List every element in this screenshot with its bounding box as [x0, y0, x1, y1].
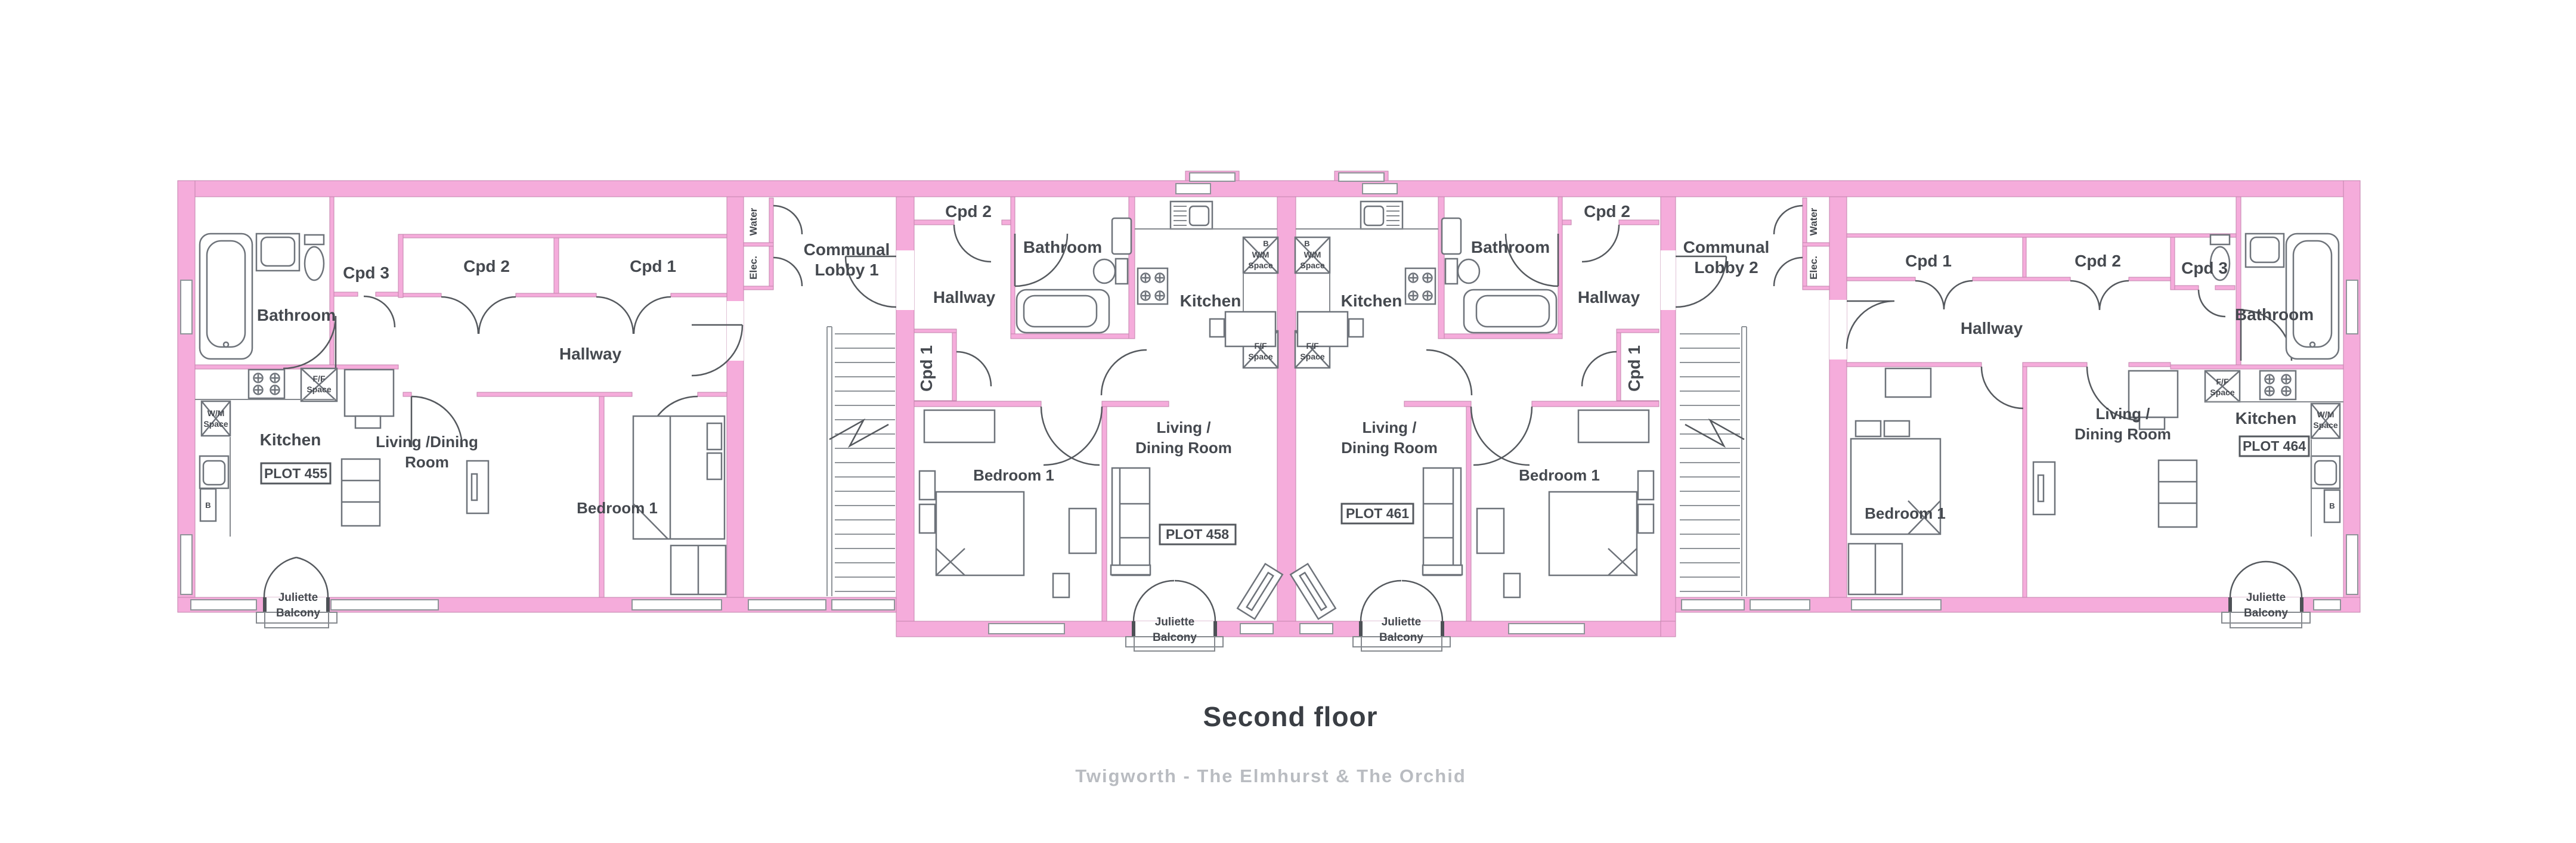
room-label-living-464-line2: Dining Room [2075, 425, 2171, 443]
balcony-label-458-line2: Balcony [1153, 631, 1197, 644]
room-label-bathroom-455: Bathroom [257, 306, 336, 324]
plot455-fixtures [195, 234, 726, 594]
room-label-hallway-464: Hallway [1961, 319, 2023, 337]
room-label-living-455-line2: Room [405, 453, 449, 471]
ff-label-458: F/F [1255, 341, 1267, 351]
boiler-label-461: B [1304, 239, 1309, 248]
room-label-living-464-line1: Living / [2096, 405, 2150, 423]
boiler-label-458: B [1263, 239, 1268, 248]
room-label-kitchen-455: Kitchen [260, 430, 321, 449]
ff-label-455: F/F [313, 374, 326, 383]
wm-space-label-461: Space [1300, 261, 1324, 270]
elec-closet-label-1: Elec. [748, 256, 759, 280]
room-label-cpd2-461: Cpd 2 [1584, 202, 1630, 221]
plot461-fixtures [1290, 202, 1654, 619]
wm-space-label-458: Space [1248, 261, 1272, 270]
room-label-bedroom-455: Bedroom 1 [577, 499, 658, 517]
room-label-bedroom-464: Bedroom 1 [1865, 504, 1946, 522]
balcony-label-464-line2: Balcony [2244, 607, 2288, 619]
room-label-bathroom-458: Bathroom [1023, 238, 1102, 256]
wm-space-label-455: Space [203, 419, 228, 429]
floor-plan-svg: Bathroom Cpd 3 Cpd 2 Cpd 1 Hallway Kitch… [0, 0, 2576, 843]
plot-455-badge: PLOT 455 [261, 463, 330, 484]
boiler-label-464: B [2329, 501, 2334, 510]
water-closet-label-1: Water [748, 207, 759, 235]
balcony-label-455-line1: Juliette [278, 591, 318, 604]
page-title: Second floor [1203, 701, 1377, 732]
wm-label-455: W/M [208, 408, 225, 418]
boiler-label-455: B [205, 501, 210, 510]
room-label-cpd1-464: Cpd 1 [1905, 252, 1952, 270]
ff-label-461: F/F [1306, 341, 1319, 351]
svg-text:PLOT 464: PLOT 464 [2243, 438, 2306, 454]
room-label-bedroom-458: Bedroom 1 [973, 466, 1054, 484]
stairs-lobby1 [827, 327, 895, 596]
room-label-living-461-line2: Dining Room [1341, 439, 1438, 457]
ff-space-label-455: Space [306, 385, 331, 394]
svg-text:PLOT 461: PLOT 461 [1346, 506, 1409, 521]
balcony-label-461-line2: Balcony [1379, 631, 1423, 644]
water-closet-label-2: Water [1808, 207, 1819, 235]
ff-space-label-461: Space [1300, 352, 1324, 361]
lobby2-label-line2: Lobby 2 [1694, 258, 1758, 277]
room-label-hallway-455: Hallway [559, 345, 622, 363]
lobby1-label-line1: Communal [804, 240, 890, 259]
plot-458-badge: PLOT 458 [1160, 525, 1236, 544]
plot-461-badge: PLOT 461 [1342, 504, 1413, 523]
balcony-label-464-line1: Juliette [2246, 591, 2286, 604]
plot458-fixtures [919, 202, 1283, 619]
stairs-lobby2 [1680, 327, 1747, 596]
room-label-cpd2-455: Cpd 2 [463, 257, 510, 275]
floor-plan-page: Bathroom Cpd 3 Cpd 2 Cpd 1 Hallway Kitch… [0, 0, 2576, 843]
room-label-living-458-line1: Living / [1157, 419, 1211, 436]
svg-text:PLOT 458: PLOT 458 [1166, 526, 1229, 542]
room-label-hallway-461: Hallway [1578, 288, 1640, 306]
wm-label-458: W/M [1252, 250, 1270, 259]
room-label-bedroom-461: Bedroom 1 [1519, 466, 1600, 484]
wm-label-464: W/M [2317, 410, 2334, 419]
room-label-cpd2-458: Cpd 2 [945, 202, 992, 221]
room-label-living-461-line1: Living / [1363, 419, 1417, 436]
balcony-label-455-line2: Balcony [276, 607, 320, 619]
room-label-living-455-line1: Living /Dining [376, 433, 478, 451]
room-label-cpd1-455: Cpd 1 [630, 257, 676, 275]
room-label-cpd3-464: Cpd 3 [2181, 259, 2228, 277]
ff-label-464: F/F [2216, 377, 2229, 386]
room-label-cpd3-455: Cpd 3 [343, 264, 389, 282]
room-label-cpd1-458: Cpd 1 [917, 345, 936, 392]
plot464-labels: Cpd 1 Cpd 2 Cpd 3 Hallway Bathroom Kitch… [1865, 252, 2338, 619]
plot455-labels: Bathroom Cpd 3 Cpd 2 Cpd 1 Hallway Kitch… [203, 257, 676, 619]
elec-closet-label-2: Elec. [1808, 256, 1819, 280]
ff-space-label-464: Space [2210, 388, 2234, 397]
wm-label-461: W/M [1304, 250, 1321, 259]
lobby2-label-line1: Communal [1683, 238, 1770, 256]
party-walls [727, 197, 1847, 621]
ff-space-label-458: Space [1248, 352, 1272, 361]
room-label-kitchen-464: Kitchen [2236, 409, 2297, 427]
room-label-cpd1-461: Cpd 1 [1625, 345, 1643, 392]
room-label-hallway-458: Hallway [933, 288, 996, 306]
room-label-kitchen-458: Kitchen [1180, 292, 1241, 310]
room-label-kitchen-461: Kitchen [1341, 292, 1402, 310]
balcony-label-458-line1: Juliette [1155, 616, 1195, 628]
room-label-cpd2-464: Cpd 2 [2075, 252, 2121, 270]
wm-space-label-464: Space [2313, 420, 2337, 430]
room-label-bathroom-464: Bathroom [2235, 305, 2314, 324]
svg-text:PLOT 455: PLOT 455 [264, 466, 327, 481]
room-label-bathroom-461: Bathroom [1471, 238, 1550, 256]
page-subtitle: Twigworth - The Elmhurst & The Orchid [1075, 765, 1466, 786]
room-label-living-458-line2: Dining Room [1135, 439, 1232, 457]
lobby2-labels: Communal Lobby 2 Water Elec. [1683, 207, 1819, 280]
plot-464-badge: PLOT 464 [2240, 436, 2309, 456]
lobby1-label-line2: Lobby 1 [815, 261, 878, 279]
balcony-label-461-line1: Juliette [1382, 616, 1422, 628]
